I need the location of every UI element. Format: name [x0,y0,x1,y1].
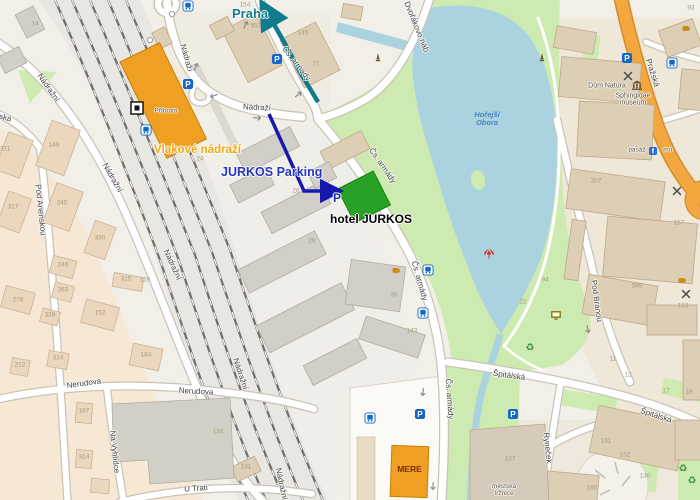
jurkos-parking-annotation: JURKOS Parking [221,165,322,179]
base-map [0,0,700,500]
hotel-jurkos-annotation: hotel JURKOS [330,212,412,226]
train-station-annotation: Vlakové nádraží [154,144,241,156]
parking-p-annotation: P [333,191,341,205]
praha-annotation: Praha [232,6,268,21]
mere-annotation: MERE [391,464,428,474]
map[interactable]: NádražníNádražníNádražníNádražníNádražní… [0,0,700,500]
